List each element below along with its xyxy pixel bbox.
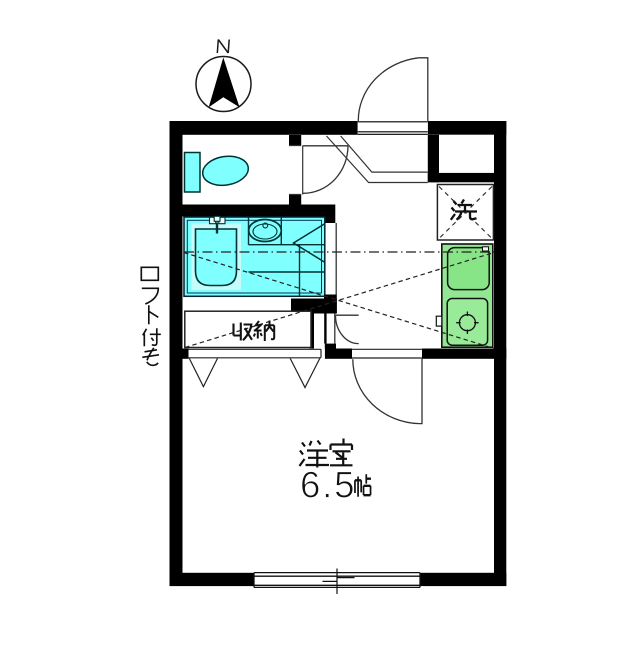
svg-text:6.5: 6.5 <box>300 465 356 506</box>
